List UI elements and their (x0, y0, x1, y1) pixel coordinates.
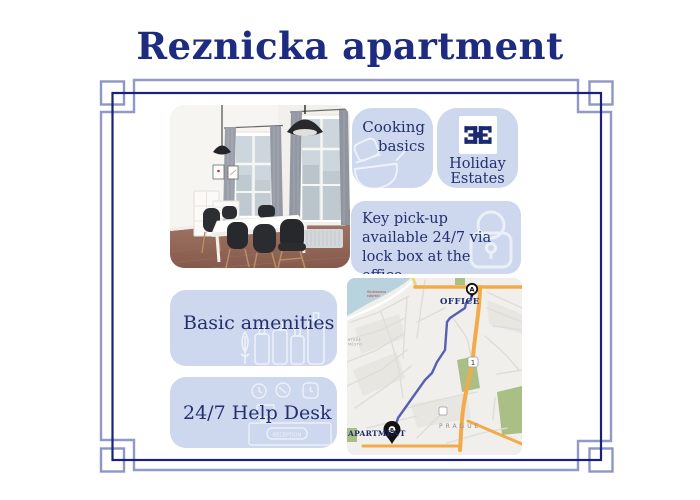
page-title: Reznicka apartment (0, 24, 700, 68)
apartment-label: APARTMENT (347, 429, 406, 438)
svg-text:MĚSTO: MĚSTO (348, 342, 362, 347)
card-key-pickup: Key pick-up available 24/7 via lock box … (351, 201, 521, 274)
district-label: STARÉ (348, 337, 361, 342)
card-help-desk: RECEPTION 24/7 Help Desk (170, 377, 337, 448)
svg-text:1: 1 (471, 359, 475, 367)
city-label: PRAGUE (439, 423, 481, 430)
reception-sign-label: RECEPTION (273, 433, 302, 439)
road-number-badge: 1 (468, 357, 478, 367)
brand-name-line2: Estates (437, 172, 518, 187)
help-desk-label: 24/7 Help Desk (170, 377, 337, 424)
holiday-estates-logo-icon (459, 116, 497, 154)
key-pickup-text: Key pick-up available 24/7 via lock box … (351, 201, 514, 274)
road-shield-badge (439, 407, 447, 415)
brand-name-line1: Holiday (437, 157, 518, 172)
cooking-basics-label: Cooking basics (352, 108, 433, 156)
office-label: OFFICE (440, 297, 480, 307)
route-map: 1 Smetanovo nábřeží STARÉ MĚSTO PRAGUE A… (347, 278, 522, 455)
apartment-photo (170, 105, 350, 268)
dining-room-illustration (170, 105, 350, 268)
basic-amenities-label: Basic amenities (170, 290, 337, 334)
svg-text:nábřeží: nábřeží (367, 294, 381, 298)
brand-name: Holiday Estates (437, 157, 518, 187)
svg-text:A: A (469, 285, 474, 293)
card-cooking-basics: Cooking basics (352, 108, 433, 188)
card-basic-amenities: Basic amenities (170, 290, 337, 366)
card-holiday-estates: Holiday Estates (437, 108, 518, 188)
